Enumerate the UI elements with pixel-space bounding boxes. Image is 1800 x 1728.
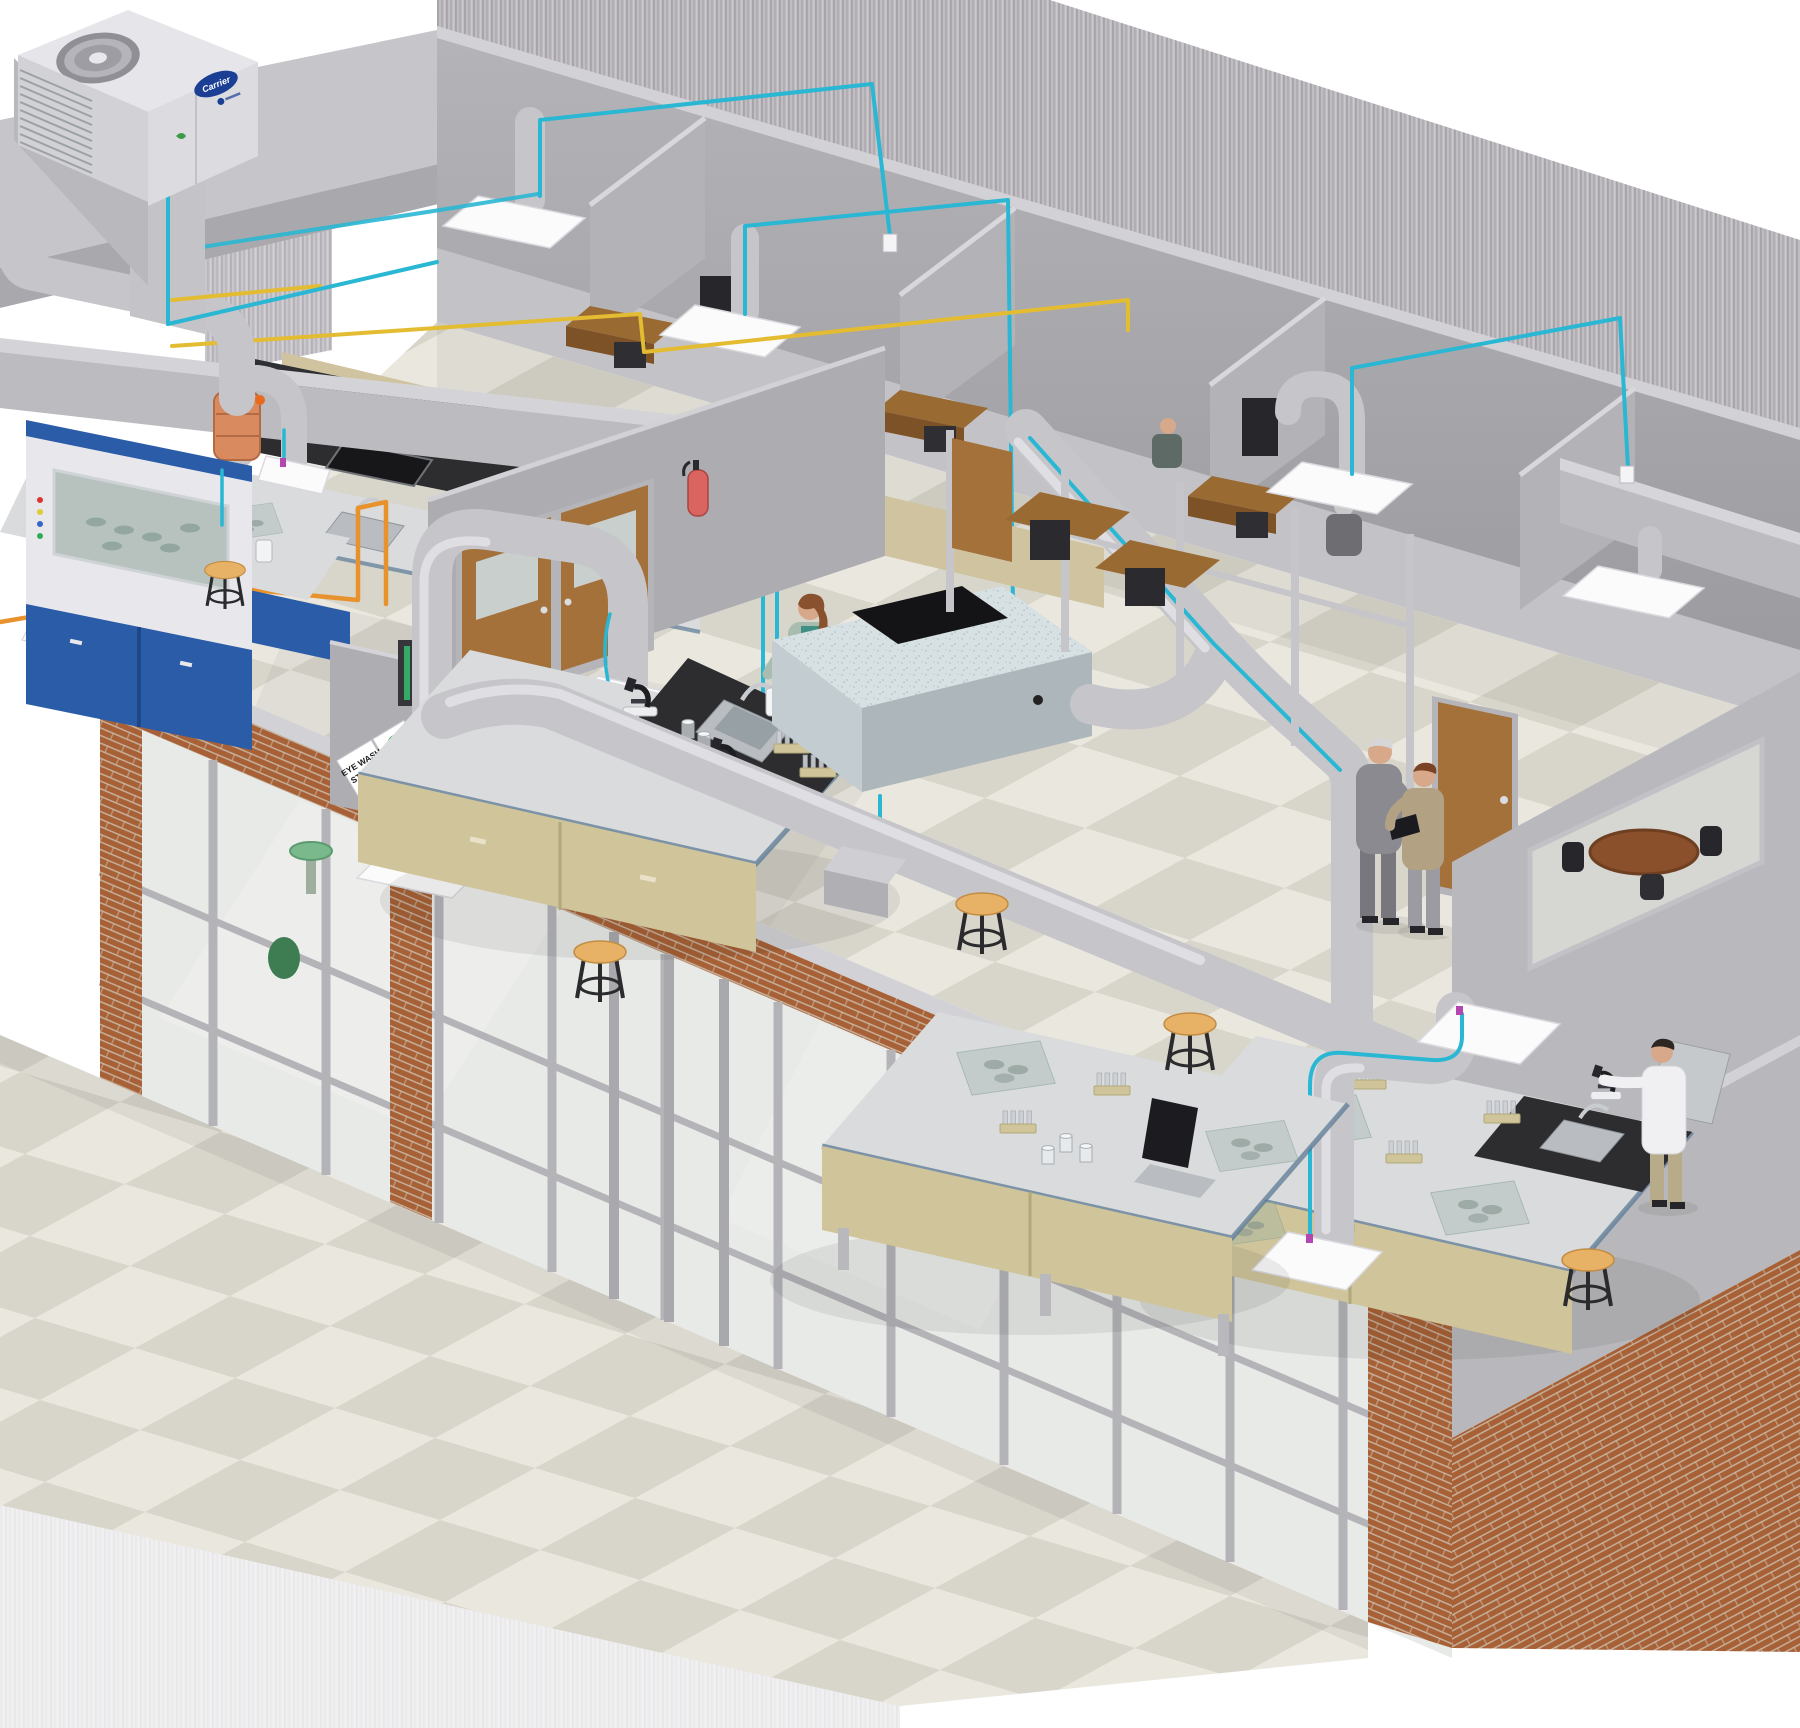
brick-pillar-1 [100,712,142,1096]
leg [1381,848,1396,918]
bench-leg [1040,1274,1051,1316]
lab-coat-hanging [268,937,300,979]
ahu-switch [1033,695,1043,705]
door-handle [1500,796,1508,804]
damper-actuator [255,395,265,405]
beaker [1060,1134,1072,1152]
chair [1562,842,1584,872]
bench-leg [1218,1314,1229,1356]
reagent-bottle [256,540,272,562]
wire-connector [280,458,286,467]
thermostat [883,234,897,252]
leg [1360,846,1375,918]
leg [1408,862,1422,928]
arm-extended [1604,1080,1646,1083]
chair [1640,874,1664,900]
wire-connector [1306,1234,1313,1243]
office-cabinet [1242,398,1278,456]
scene-canvas: EYE WASH STATION [0,0,1800,1728]
lab-hvac-illustration: EYE WASH STATION [0,0,1800,1728]
door-handle [565,599,572,606]
beaker [1042,1146,1054,1164]
door-handle [541,607,548,614]
leg [1426,864,1440,928]
beaker [682,720,694,738]
thermostat-2 [1620,466,1634,483]
beaker [1080,1144,1092,1162]
wood-door-1 [952,438,1012,562]
wire-connector [1456,1006,1463,1015]
bench-leg [838,1228,849,1270]
chair [1700,826,1722,856]
